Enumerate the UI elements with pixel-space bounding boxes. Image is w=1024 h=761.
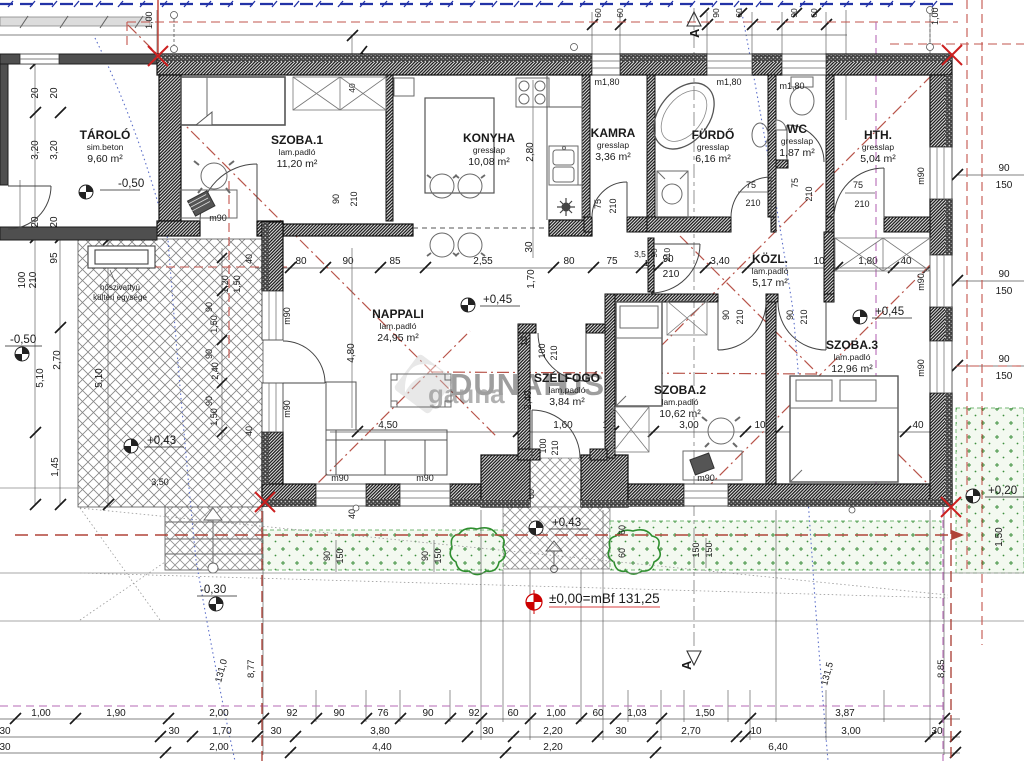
svg-text:KONYHA: KONYHA [463, 131, 515, 145]
svg-text:100: 100 [17, 271, 28, 288]
svg-text:75: 75 [790, 178, 800, 188]
svg-text:1,00: 1,00 [144, 11, 154, 29]
svg-text:90: 90 [721, 310, 731, 320]
svg-text:m90: m90 [416, 473, 434, 483]
svg-text:75: 75 [593, 199, 603, 209]
svg-text:m90: m90 [916, 359, 926, 377]
svg-text:90: 90 [998, 269, 1010, 280]
svg-text:2,80: 2,80 [525, 142, 536, 162]
svg-text:kültéri egysége: kültéri egysége [93, 293, 147, 302]
svg-text:lam.padló: lam.padló [549, 385, 586, 395]
svg-text:3,50: 3,50 [151, 477, 169, 487]
svg-text:30: 30 [0, 742, 11, 753]
svg-text:30: 30 [524, 241, 535, 253]
svg-text:TÁROLÓ: TÁROLÓ [80, 127, 131, 142]
svg-text:1,50: 1,50 [695, 708, 715, 719]
svg-text:90: 90 [322, 551, 332, 561]
svg-text:m90: m90 [331, 473, 349, 483]
svg-text:A: A [687, 28, 702, 38]
svg-text:90: 90 [785, 310, 795, 320]
svg-text:4,50: 4,50 [378, 420, 398, 431]
svg-text:40: 40 [244, 254, 254, 264]
svg-text:90: 90 [333, 708, 345, 719]
svg-text:6,16 m²: 6,16 m² [695, 153, 731, 165]
svg-text:1,00: 1,00 [546, 708, 566, 719]
svg-text:90: 90 [711, 8, 721, 18]
svg-text:210: 210 [735, 309, 745, 324]
svg-text:150: 150 [996, 286, 1013, 297]
svg-text:SZOBA.2: SZOBA.2 [654, 383, 706, 397]
svg-text:m90: m90 [282, 307, 292, 325]
svg-text:90: 90 [204, 349, 214, 359]
svg-text:m90: m90 [209, 213, 227, 223]
svg-text:3,84 m²: 3,84 m² [549, 396, 585, 408]
svg-text:SZÉLFOGÓ: SZÉLFOGÓ [534, 370, 600, 385]
svg-text:20: 20 [30, 87, 41, 99]
svg-text:60: 60 [615, 8, 625, 18]
svg-text:75: 75 [746, 180, 756, 190]
svg-text:10: 10 [750, 726, 762, 737]
svg-text:6,40: 6,40 [768, 742, 788, 753]
svg-text:10,08 m²: 10,08 m² [468, 156, 510, 168]
svg-text:76: 76 [377, 708, 389, 719]
svg-text:5,10: 5,10 [94, 368, 105, 388]
svg-text:gresslap: gresslap [697, 142, 729, 152]
svg-text:A: A [679, 660, 694, 670]
svg-text:+0,45: +0,45 [483, 294, 512, 306]
svg-text:210: 210 [745, 198, 760, 208]
svg-text:3,36 m²: 3,36 m² [595, 151, 631, 163]
svg-text:2,55: 2,55 [473, 256, 493, 267]
svg-text:1,90: 1,90 [106, 708, 126, 719]
svg-text:m1,80: m1,80 [716, 77, 741, 87]
svg-text:90: 90 [204, 396, 214, 406]
svg-text:20: 20 [49, 216, 60, 228]
svg-text:+0,43: +0,43 [552, 517, 581, 529]
svg-text:-0,50: -0,50 [118, 178, 144, 190]
svg-text:10: 10 [754, 420, 766, 431]
svg-text:90: 90 [204, 302, 214, 312]
svg-text:SZOBA.1: SZOBA.1 [271, 133, 323, 147]
svg-text:hőszivattyú: hőszivattyú [100, 283, 140, 292]
svg-text:2,00: 2,00 [209, 708, 229, 719]
svg-text:2,20: 2,20 [543, 742, 563, 753]
svg-text:90: 90 [789, 8, 799, 18]
svg-text:210: 210 [349, 191, 359, 206]
svg-text:210: 210 [550, 440, 560, 455]
svg-text:2,40: 2,40 [523, 390, 534, 410]
svg-text:2,20: 2,20 [543, 726, 563, 737]
svg-text:8,85: 8,85 [936, 660, 947, 679]
svg-text:150: 150 [996, 371, 1013, 382]
svg-text:80: 80 [295, 256, 307, 267]
svg-text:3,80: 3,80 [370, 726, 390, 737]
svg-text:3,00: 3,00 [841, 726, 861, 737]
svg-text:1,00: 1,00 [930, 7, 940, 25]
svg-text:60: 60 [734, 8, 744, 18]
svg-text:90: 90 [422, 708, 434, 719]
svg-text:3,00: 3,00 [679, 420, 699, 431]
svg-text:gresslap: gresslap [473, 145, 505, 155]
svg-text:75: 75 [606, 256, 618, 267]
svg-text:30: 30 [270, 726, 282, 737]
svg-text:60: 60 [507, 708, 519, 719]
svg-text:lam.padló: lam.padló [834, 352, 871, 362]
svg-text:m90: m90 [697, 473, 715, 483]
svg-text:210: 210 [662, 248, 672, 262]
svg-text:lam.padló: lam.padló [752, 266, 789, 276]
svg-text:92: 92 [468, 708, 480, 719]
svg-text:10: 10 [519, 336, 529, 346]
svg-text:95: 95 [49, 252, 60, 264]
svg-text:2,70: 2,70 [52, 350, 63, 370]
svg-text:10,62 m²: 10,62 m² [659, 408, 701, 420]
svg-text:±0,00=mBf 131,25: ±0,00=mBf 131,25 [549, 591, 660, 606]
svg-text:1,50: 1,50 [209, 315, 219, 333]
svg-text:10: 10 [813, 256, 825, 267]
svg-text:5,10: 5,10 [35, 368, 46, 388]
svg-text:85: 85 [389, 256, 401, 267]
svg-text:150: 150 [433, 548, 443, 563]
svg-text:11,20 m²: 11,20 m² [277, 158, 318, 170]
svg-text:-0,50: -0,50 [10, 334, 36, 346]
svg-text:60: 60 [593, 8, 603, 18]
svg-text:3,20: 3,20 [30, 140, 41, 160]
svg-text:1,70: 1,70 [526, 269, 537, 289]
svg-text:1,50: 1,50 [232, 275, 242, 293]
svg-text:3,40: 3,40 [710, 256, 730, 267]
svg-text:210: 210 [663, 269, 680, 280]
svg-text:1,00: 1,00 [31, 708, 51, 719]
svg-text:60: 60 [809, 8, 819, 18]
svg-text:KAMRA: KAMRA [591, 126, 636, 140]
svg-text:1,45: 1,45 [50, 457, 61, 477]
svg-text:92: 92 [286, 708, 298, 719]
svg-text:-0,30: -0,30 [200, 584, 226, 596]
svg-text:m90: m90 [282, 400, 292, 418]
svg-text:1,50: 1,50 [209, 408, 219, 426]
svg-text:4,80: 4,80 [346, 343, 357, 363]
svg-text:210: 210 [608, 198, 618, 213]
svg-text:lam.padló: lam.padló [380, 321, 417, 331]
svg-text:100: 100 [537, 343, 547, 358]
svg-text:gresslap: gresslap [781, 136, 813, 146]
svg-text:150: 150 [335, 548, 345, 563]
svg-text:30: 30 [482, 726, 494, 737]
svg-text:lam.padló: lam.padló [662, 397, 699, 407]
svg-text:30: 30 [168, 726, 180, 737]
svg-text:210: 210 [854, 199, 869, 209]
svg-text:12,96 m²: 12,96 m² [831, 363, 873, 375]
svg-text:5,04 m²: 5,04 m² [860, 153, 896, 165]
svg-text:gresslap: gresslap [597, 140, 629, 150]
svg-text:NAPPALI: NAPPALI [372, 307, 424, 321]
svg-text:8,77: 8,77 [246, 660, 257, 679]
svg-text:90: 90 [998, 163, 1010, 174]
svg-text:2,40: 2,40 [210, 362, 220, 380]
svg-text:m90: m90 [916, 273, 926, 291]
svg-text:5,17 m²: 5,17 m² [752, 277, 788, 289]
svg-text:9,60 m²: 9,60 m² [87, 153, 123, 165]
svg-text:75: 75 [853, 180, 863, 190]
svg-text:gresslap: gresslap [862, 142, 894, 152]
svg-text:3,20: 3,20 [49, 140, 60, 160]
svg-text:150: 150 [996, 180, 1013, 191]
svg-text:210: 210 [799, 309, 809, 324]
svg-text:lam.padló: lam.padló [279, 147, 316, 157]
svg-text:210: 210 [549, 345, 559, 360]
svg-text:1,87 m²: 1,87 m² [779, 147, 815, 159]
svg-text:150: 150 [691, 542, 701, 557]
svg-text:60: 60 [592, 708, 604, 719]
svg-text:KÖZL.: KÖZL. [752, 251, 788, 266]
svg-text:60: 60 [617, 548, 627, 558]
svg-text:30: 30 [0, 726, 11, 737]
svg-text:SZOBA.3: SZOBA.3 [826, 338, 878, 352]
svg-text:20: 20 [49, 87, 60, 99]
svg-text:m1,80: m1,80 [779, 81, 804, 91]
svg-text:3,87: 3,87 [835, 708, 855, 719]
svg-text:90: 90 [420, 551, 430, 561]
svg-text:90: 90 [649, 248, 659, 258]
svg-text:210: 210 [804, 186, 814, 201]
svg-text:24,95 m²: 24,95 m² [377, 332, 419, 344]
svg-text:1,50: 1,50 [994, 527, 1005, 547]
svg-text:FÜRDŐ: FÜRDŐ [692, 127, 735, 142]
svg-text:60: 60 [617, 525, 627, 535]
svg-text:WC: WC [787, 122, 807, 136]
svg-text:90: 90 [998, 354, 1010, 365]
svg-text:+0,20: +0,20 [988, 485, 1017, 497]
svg-text:40: 40 [244, 426, 254, 436]
svg-text:1,03: 1,03 [627, 708, 647, 719]
svg-text:4,40: 4,40 [372, 742, 392, 753]
svg-text:2,00: 2,00 [209, 742, 229, 753]
svg-text:30: 30 [931, 726, 943, 737]
svg-text:90: 90 [331, 194, 341, 204]
svg-text:100: 100 [538, 438, 548, 453]
svg-text:m1,80: m1,80 [594, 77, 619, 87]
svg-text:2,70: 2,70 [681, 726, 701, 737]
svg-text:HTH.: HTH. [864, 128, 892, 142]
svg-text:+0,43: +0,43 [147, 435, 176, 447]
svg-text:1,70: 1,70 [212, 726, 232, 737]
svg-text:gauna: gauna [428, 379, 505, 409]
svg-text:40: 40 [912, 420, 924, 431]
svg-text:sim.beton: sim.beton [87, 142, 124, 152]
svg-text:210: 210 [28, 271, 39, 288]
svg-text:150: 150 [704, 542, 714, 557]
svg-text:30: 30 [615, 726, 627, 737]
svg-text:m90: m90 [916, 167, 926, 185]
svg-text:+0,45: +0,45 [875, 306, 904, 318]
svg-text:80: 80 [563, 256, 575, 267]
